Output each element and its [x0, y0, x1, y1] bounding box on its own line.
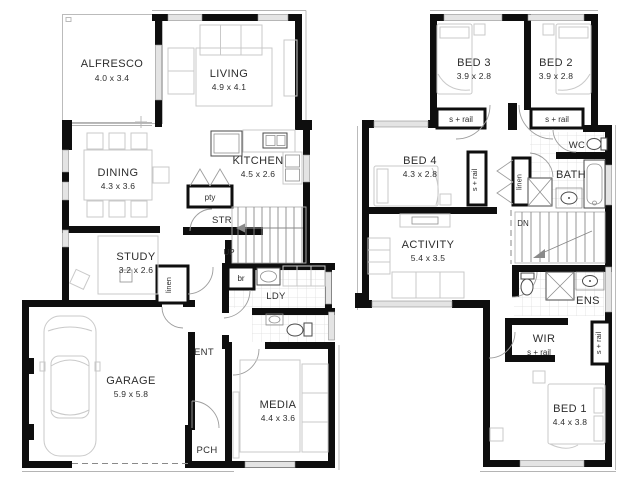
room-dims-activity: 5.4 x 3.5: [411, 253, 445, 263]
room-dims-bed1: 4.4 x 3.8: [553, 417, 587, 427]
room-dims-study: 3.2 x 2.6: [119, 265, 153, 275]
room-label-bed1: BED 1: [553, 403, 587, 415]
room-label-bed4: BED 4: [403, 155, 437, 167]
front-door: [192, 401, 219, 428]
first-floor-plan: BED 3 3.9 x 2.8 BED 2 3.9 x 2.8 s + rail…: [355, 11, 616, 472]
toilet-icon: [587, 139, 601, 150]
first-walls: [355, 14, 612, 467]
label-entry: ENT: [194, 347, 214, 358]
wc-fixtures: [587, 138, 607, 150]
floor-plan-svg: ALFRESCO 4.0 x 3.4 LIVING 4.9 x 4.1 DINI…: [0, 0, 640, 480]
room-dims-media: 4.4 x 3.6: [261, 413, 295, 423]
label-srail-bed3: s + rail: [449, 115, 473, 124]
room-dims-living: 4.9 x 4.1: [212, 82, 246, 92]
label-broom: br: [237, 274, 244, 283]
sliding-door: [72, 123, 152, 126]
room-label-activity: ACTIVITY: [402, 239, 455, 251]
label-linen-first: linen: [515, 174, 524, 190]
label-laundry: LDY: [266, 291, 286, 302]
label-store: STR: [212, 215, 232, 226]
label-srail-bed1: s + rail: [594, 332, 603, 355]
ground-floor-plan: ALFRESCO 4.0 x 3.4 LIVING 4.9 x 4.1 DINI…: [22, 11, 339, 472]
room-label-study: STUDY: [116, 251, 156, 263]
room-dims-bed3: 3.9 x 2.8: [457, 71, 491, 81]
toilet-icon: [521, 279, 533, 295]
label-down: DN: [517, 219, 529, 228]
label-srail-bed2: s + rail: [545, 115, 569, 124]
room-dims-alfresco: 4.0 x 3.4: [95, 73, 129, 83]
living-furniture: [168, 25, 297, 106]
room-label-garage: GARAGE: [106, 375, 155, 387]
toilet-icon: [287, 324, 303, 336]
label-srail-wir: s + rail: [527, 348, 551, 357]
label-porch: PCH: [197, 445, 218, 456]
bed1-furniture: [490, 371, 605, 448]
label-pantry: pty: [205, 193, 216, 202]
room-dims-bed2: 3.9 x 2.8: [539, 71, 573, 81]
label-up: UP: [223, 248, 234, 257]
room-dims-dining: 4.3 x 3.6: [101, 181, 135, 191]
label-wir: WIR: [533, 333, 556, 345]
label-linen-ground: linen: [164, 277, 173, 293]
room-dims-kitchen: 4.5 x 2.6: [241, 169, 275, 179]
label-ensuite: ENS: [576, 295, 600, 307]
label-wc: WC: [569, 140, 585, 151]
label-bath: BATH: [556, 169, 586, 181]
room-label-media: MEDIA: [260, 399, 297, 411]
corner-mark: [66, 18, 71, 22]
room-label-living: LIVING: [210, 68, 248, 80]
floor-plan-image: ALFRESCO 4.0 x 3.4 LIVING 4.9 x 4.1 DINI…: [0, 0, 640, 480]
room-label-bed3: BED 3: [457, 57, 491, 69]
room-dims-bed4: 4.3 x 2.8: [403, 169, 437, 179]
linen-bifold-door: [497, 160, 513, 204]
room-label-bed2: BED 2: [539, 57, 573, 69]
room-label-dining: DINING: [98, 167, 139, 179]
car: [40, 316, 100, 456]
room-dims-garage: 5.9 x 5.8: [114, 389, 148, 399]
label-srail-bed4: s + rail: [470, 169, 479, 192]
room-label-kitchen: KITCHEN: [232, 155, 283, 167]
room-label-alfresco: ALFRESCO: [81, 58, 144, 70]
stair-arrow-down: [533, 249, 545, 258]
pantry-bifold-door: [190, 169, 230, 186]
